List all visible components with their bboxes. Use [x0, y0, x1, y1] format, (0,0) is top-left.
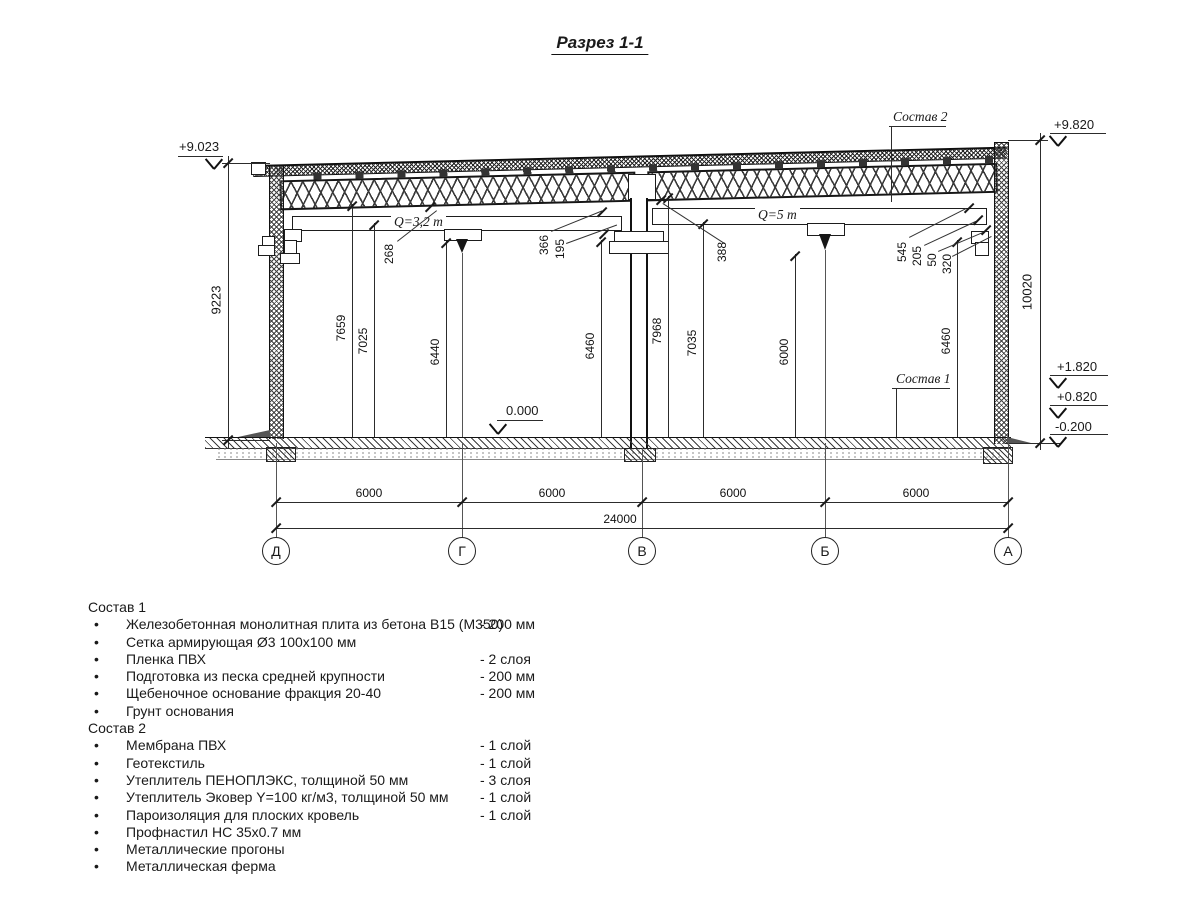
- bullet-icon: •: [94, 685, 99, 702]
- dim-line: [703, 222, 704, 437]
- ground-base: [216, 447, 1004, 460]
- axis-bubble-v: В: [628, 537, 656, 565]
- list-item: •Железобетонная монолитная плита из бето…: [88, 616, 728, 633]
- elevation-ground: -0.200: [1055, 419, 1092, 434]
- dim-total-line: [276, 528, 1008, 529]
- bullet-icon: •: [94, 841, 99, 858]
- axis-label: Г: [458, 543, 466, 559]
- bullet-icon: •: [94, 651, 99, 668]
- elevation-arrow-icon: [1051, 434, 1065, 447]
- list-item: •Грунт основания: [88, 703, 728, 720]
- bullet-icon: •: [94, 772, 99, 789]
- list-item: •Пленка ПВХ- 2 слоя: [88, 651, 728, 668]
- list-item: •Подготовка из песка средней крупности- …: [88, 668, 728, 685]
- dim-s2: 366: [537, 235, 551, 255]
- list-item: •Металлические прогоны: [88, 841, 728, 858]
- elevation-arrow-icon: [1051, 405, 1065, 418]
- bullet-icon: •: [94, 737, 99, 754]
- dim-s7: 50: [925, 253, 939, 266]
- dim-line: [957, 240, 958, 437]
- item-name: Пароизоляция для плоских кровель: [126, 807, 359, 823]
- axis-line: [642, 448, 643, 538]
- axis-label: Б: [820, 543, 829, 559]
- dim-total: 24000: [603, 512, 636, 526]
- item-value: - 3 слоя: [480, 772, 531, 789]
- bullet-icon: •: [94, 703, 99, 720]
- dim-left-outer: 9223: [209, 286, 224, 315]
- elevation-zero: 0.000: [506, 403, 539, 418]
- item-name: Железобетонная монолитная плита из бетон…: [126, 616, 503, 632]
- dim-s6: 205: [910, 246, 924, 266]
- axis-line: [825, 250, 826, 437]
- list-item: •Утеплитель Эковер Y=100 кг/м3, толщиной…: [88, 789, 728, 806]
- callout-leader: [896, 388, 897, 437]
- elevation-arrow-icon: [1051, 133, 1065, 146]
- elevation-top-right: +9.820: [1054, 117, 1094, 132]
- dim-v2: 7025: [356, 328, 370, 355]
- bullet-icon: •: [94, 824, 99, 841]
- item-name: Мембрана ПВХ: [126, 737, 226, 753]
- list-item: •Щебеночное основание фракция 20-40- 200…: [88, 685, 728, 702]
- right-wall: [994, 142, 1009, 444]
- dim-s5: 545: [895, 242, 909, 262]
- item-name: Подготовка из песка средней крупности: [126, 668, 385, 684]
- axis-line: [276, 443, 277, 538]
- callout-underline: [892, 388, 950, 389]
- item-name: Профнастил НС 35х0.7 мм: [126, 824, 301, 840]
- dim-span: 6000: [539, 486, 566, 500]
- axis-line: [1008, 443, 1009, 538]
- bullet-icon: •: [94, 668, 99, 685]
- elevation-arrow-icon: [207, 156, 221, 169]
- list-item: •Мембрана ПВХ- 1 слой: [88, 737, 728, 754]
- callout-sostav2: Состав 2: [893, 109, 948, 125]
- axis-bubble-g: Г: [448, 537, 476, 565]
- list-item: •Сетка армирующая Ø3 100х100 мм: [88, 634, 728, 651]
- crane-capacity-left: Q=3,2 т: [391, 214, 446, 230]
- item-name: Щебеночное основание фракция 20-40: [126, 685, 381, 701]
- list-item: •Металлическая ферма: [88, 858, 728, 875]
- axis-bubble-d: Д: [262, 537, 290, 565]
- list-heading-sostav1: Состав 1: [88, 599, 728, 616]
- dim-span: 6000: [903, 486, 930, 500]
- item-value: - 200 мм: [480, 616, 535, 633]
- item-value: - 1 слой: [480, 807, 531, 824]
- elevation-top-left: +9.023: [179, 139, 219, 154]
- dim-line-right-outer: [1040, 133, 1041, 450]
- hoist-right-hook: [819, 234, 831, 250]
- callout-underline: [889, 126, 946, 127]
- dim-line-left-outer: [228, 156, 229, 448]
- ext-line: [222, 163, 270, 164]
- drawing-sheet: { "title": "Разрез 1-1", "bullet": "•", …: [0, 0, 1200, 900]
- dim-v4: 6460: [583, 333, 597, 360]
- dim-span: 6000: [356, 486, 383, 500]
- axis-line: [462, 253, 463, 437]
- item-name: Металлическая ферма: [126, 858, 276, 874]
- page-title: Разрез 1-1: [551, 33, 648, 55]
- ext-line: [222, 440, 270, 441]
- elevation-arrow-icon: [491, 421, 505, 434]
- dim-v8: 6460: [939, 328, 953, 355]
- item-value: - 200 мм: [480, 668, 535, 685]
- callout-leader: [891, 126, 892, 202]
- dim-s4: 388: [715, 242, 729, 262]
- hoist-left-hook: [456, 239, 468, 253]
- axis-label: А: [1003, 543, 1012, 559]
- ext-line: [1008, 140, 1048, 141]
- list-item: •Пароизоляция для плоских кровель- 1 сло…: [88, 807, 728, 824]
- item-value: - 200 мм: [480, 685, 535, 702]
- axis-label: Д: [271, 543, 280, 559]
- item-value: - 1 слой: [480, 789, 531, 806]
- apron-left: [238, 430, 270, 437]
- axis-line: [462, 443, 463, 538]
- dim-line: [446, 241, 447, 437]
- bracket-left-outer: [258, 245, 275, 256]
- elevation-arrow-icon: [1051, 375, 1065, 388]
- item-value: - 1 слой: [480, 737, 531, 754]
- item-name: Утеплитель ПЕНОПЛЭКС, толщиной 50 мм: [126, 772, 408, 788]
- list-item: •Геотекстиль- 1 слой: [88, 755, 728, 772]
- axis-line: [825, 443, 826, 538]
- dim-v7: 6000: [777, 339, 791, 366]
- dim-s8: 320: [940, 254, 954, 274]
- materials-lists: Состав 1 •Железобетонная монолитная плит…: [88, 599, 728, 876]
- dim-s3: 195: [553, 239, 567, 259]
- list-heading-sostav2: Состав 2: [88, 720, 728, 737]
- dim-span: 6000: [720, 486, 747, 500]
- left-wall: [269, 166, 284, 439]
- bullet-icon: •: [94, 858, 99, 875]
- bracket-left-wall: [280, 253, 300, 264]
- bullet-icon: •: [94, 789, 99, 806]
- item-name: Пленка ПВХ: [126, 651, 206, 667]
- dim-line: [601, 240, 602, 437]
- axis-label: В: [637, 543, 646, 559]
- dim-line: [374, 223, 375, 437]
- item-name: Грунт основания: [126, 703, 234, 719]
- dim-v5: 7968: [650, 318, 664, 345]
- dim-line: [352, 204, 353, 437]
- dim-v6: 7035: [685, 330, 699, 357]
- item-name: Сетка армирующая Ø3 100х100 мм: [126, 634, 356, 650]
- item-value: - 2 слоя: [480, 651, 531, 668]
- elevation-mid-high: +1.820: [1057, 359, 1097, 374]
- bullet-icon: •: [94, 755, 99, 772]
- item-name: Утеплитель Эковер Y=100 кг/м3, толщиной …: [126, 789, 449, 805]
- axis-bubble-b: Б: [811, 537, 839, 565]
- bullet-icon: •: [94, 807, 99, 824]
- dim-line: [795, 254, 796, 437]
- dim-right-outer: 10020: [1020, 274, 1035, 310]
- bullet-icon: •: [94, 634, 99, 651]
- item-name: Геотекстиль: [126, 755, 205, 771]
- crane-capacity-right: Q=5 т: [755, 207, 800, 223]
- center-column-cap: [628, 174, 656, 200]
- item-name: Металлические прогоны: [126, 841, 285, 857]
- foundation-center: [624, 448, 656, 462]
- elevation-mid-low: +0.820: [1057, 389, 1097, 404]
- bullet-icon: •: [94, 616, 99, 633]
- callout-sostav1: Состав 1: [896, 371, 951, 387]
- foundation-left: [266, 447, 296, 462]
- dim-s1: 268: [382, 244, 396, 264]
- bracket-center-column: [609, 241, 669, 254]
- list-item: •Утеплитель ПЕНОПЛЭКС, толщиной 50 мм- 3…: [88, 772, 728, 789]
- item-value: - 1 слой: [480, 755, 531, 772]
- dim-v3: 6440: [428, 339, 442, 366]
- dim-v1: 7659: [334, 315, 348, 342]
- list-item: •Профнастил НС 35х0.7 мм: [88, 824, 728, 841]
- dim-line: [668, 196, 669, 437]
- axis-bubble-a: А: [994, 537, 1022, 565]
